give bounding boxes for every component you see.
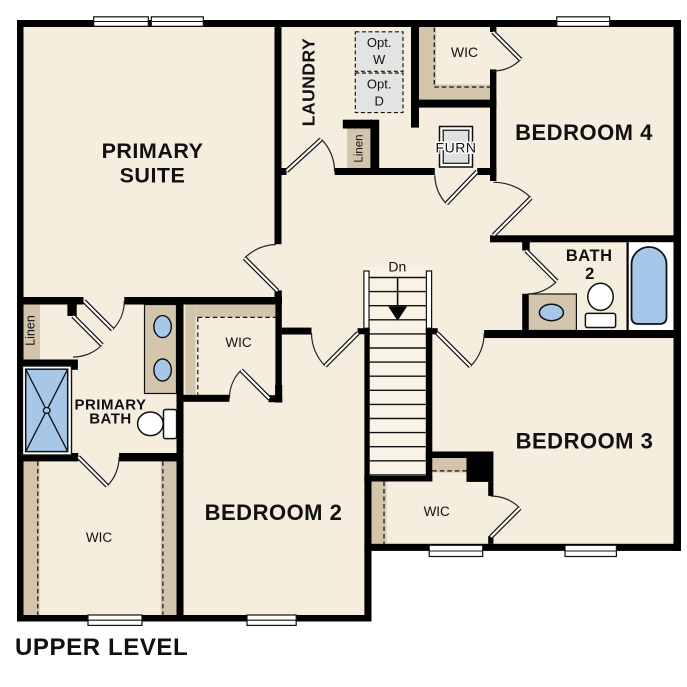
svg-text:Linen: Linen xyxy=(354,134,366,162)
svg-text:WIC: WIC xyxy=(86,530,112,545)
svg-text:Linen: Linen xyxy=(24,315,38,346)
svg-text:W: W xyxy=(373,52,386,67)
svg-text:SUITE: SUITE xyxy=(120,164,186,188)
svg-text:Opt.: Opt. xyxy=(367,35,392,50)
svg-text:WIC: WIC xyxy=(225,335,251,350)
svg-text:WIC: WIC xyxy=(451,44,478,60)
svg-text:LAUNDRY: LAUNDRY xyxy=(299,38,319,126)
svg-text:Dn: Dn xyxy=(388,259,406,275)
svg-text:UPPER LEVEL: UPPER LEVEL xyxy=(15,634,188,661)
svg-text:BEDROOM 4: BEDROOM 4 xyxy=(515,120,653,145)
svg-text:FURN: FURN xyxy=(436,140,477,156)
svg-text:BATH: BATH xyxy=(566,247,613,265)
svg-text:BATH: BATH xyxy=(89,410,132,427)
svg-text:WIC: WIC xyxy=(424,504,450,519)
svg-text:2: 2 xyxy=(585,265,595,283)
svg-text:Opt.: Opt. xyxy=(367,77,392,92)
svg-text:BEDROOM 3: BEDROOM 3 xyxy=(516,429,654,454)
svg-text:PRIMARY: PRIMARY xyxy=(102,139,204,163)
svg-text:BEDROOM 2: BEDROOM 2 xyxy=(205,500,343,525)
svg-text:D: D xyxy=(375,94,384,109)
